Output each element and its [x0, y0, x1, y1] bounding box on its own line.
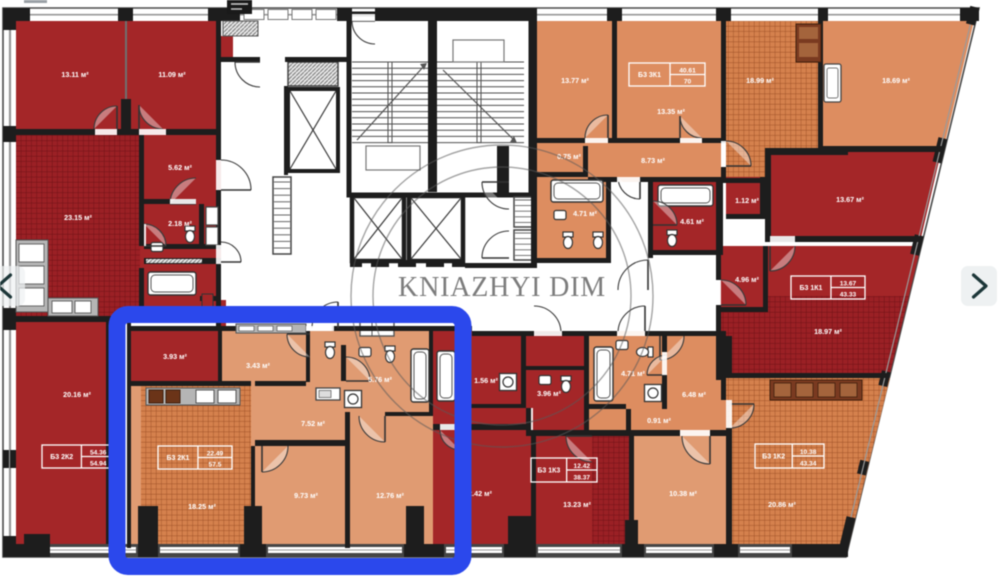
svg-text:12.42: 12.42	[574, 463, 591, 470]
svg-text:5.76 м²: 5.76 м²	[368, 375, 392, 384]
svg-text:57.5: 57.5	[209, 461, 222, 468]
svg-text:Б3 1К2: Б3 1К2	[762, 454, 785, 461]
svg-text:18.97 м²: 18.97 м²	[814, 327, 842, 336]
svg-text:18.99 м²: 18.99 м²	[746, 76, 774, 85]
svg-text:13.77 м²: 13.77 м²	[561, 76, 589, 85]
svg-text:12.76 м²: 12.76 м²	[376, 491, 404, 500]
svg-text:Б3 2К2: Б3 2К2	[50, 454, 73, 461]
svg-text:3.43 м²: 3.43 м²	[246, 361, 270, 370]
svg-text:20.16 м²: 20.16 м²	[63, 390, 91, 399]
svg-text:11.09 м²: 11.09 м²	[158, 70, 186, 79]
svg-text:Б3 1К1: Б3 1К1	[800, 285, 823, 292]
svg-text:1.56 м²: 1.56 м²	[474, 376, 498, 385]
svg-text:22.49: 22.49	[207, 450, 224, 457]
svg-text:13.67: 13.67	[840, 280, 857, 287]
svg-text:Б3 3К1: Б3 3К1	[638, 72, 661, 79]
svg-text:13.23 м²: 13.23 м²	[563, 500, 591, 509]
svg-text:13.35 м²: 13.35 м²	[657, 107, 685, 116]
svg-text:2.42 м²: 2.42 м²	[468, 489, 492, 498]
svg-text:Б3 1К3: Б3 1К3	[537, 468, 560, 475]
svg-text:54.94: 54.94	[90, 460, 107, 467]
svg-text:5.62 м²: 5.62 м²	[168, 163, 192, 172]
svg-text:0.91 м²: 0.91 м²	[647, 416, 671, 425]
svg-text:10.38: 10.38	[800, 449, 817, 456]
svg-text:3.96 м²: 3.96 м²	[537, 389, 561, 398]
svg-text:2.18 м²: 2.18 м²	[168, 219, 192, 228]
svg-text:4.61 м²: 4.61 м²	[680, 217, 704, 226]
svg-text:70: 70	[684, 78, 692, 85]
svg-text:4.96 м²: 4.96 м²	[735, 275, 759, 284]
svg-text:43.33: 43.33	[840, 291, 857, 298]
svg-text:18.69 м²: 18.69 м²	[882, 76, 910, 85]
svg-text:18.25 м²: 18.25 м²	[188, 502, 216, 511]
svg-text:9.73 м²: 9.73 м²	[294, 491, 318, 500]
svg-text:23.15 м²: 23.15 м²	[64, 213, 92, 222]
svg-text:KNIAZHYI DIM: KNIAZHYI DIM	[398, 272, 606, 303]
svg-text:10.38 м²: 10.38 м²	[669, 489, 697, 498]
svg-text:13.11 м²: 13.11 м²	[61, 70, 89, 79]
svg-text:20.86 м²: 20.86 м²	[768, 500, 796, 509]
svg-text:13.67 м²: 13.67 м²	[836, 195, 864, 204]
svg-text:6.48 м²: 6.48 м²	[682, 390, 706, 399]
svg-text:Б3 2К1: Б3 2К1	[167, 455, 190, 462]
svg-text:7.52 м²: 7.52 м²	[301, 419, 325, 428]
svg-text:1.12 м²: 1.12 м²	[735, 196, 759, 205]
svg-text:8.73 м²: 8.73 м²	[641, 156, 665, 165]
svg-text:38.37: 38.37	[574, 474, 591, 481]
svg-text:40.61: 40.61	[679, 67, 696, 74]
svg-text:54.36: 54.36	[90, 449, 107, 456]
svg-text:4.71 м²: 4.71 м²	[573, 209, 597, 218]
svg-text:43.34: 43.34	[800, 460, 817, 467]
svg-text:3.93 м²: 3.93 м²	[163, 352, 187, 361]
